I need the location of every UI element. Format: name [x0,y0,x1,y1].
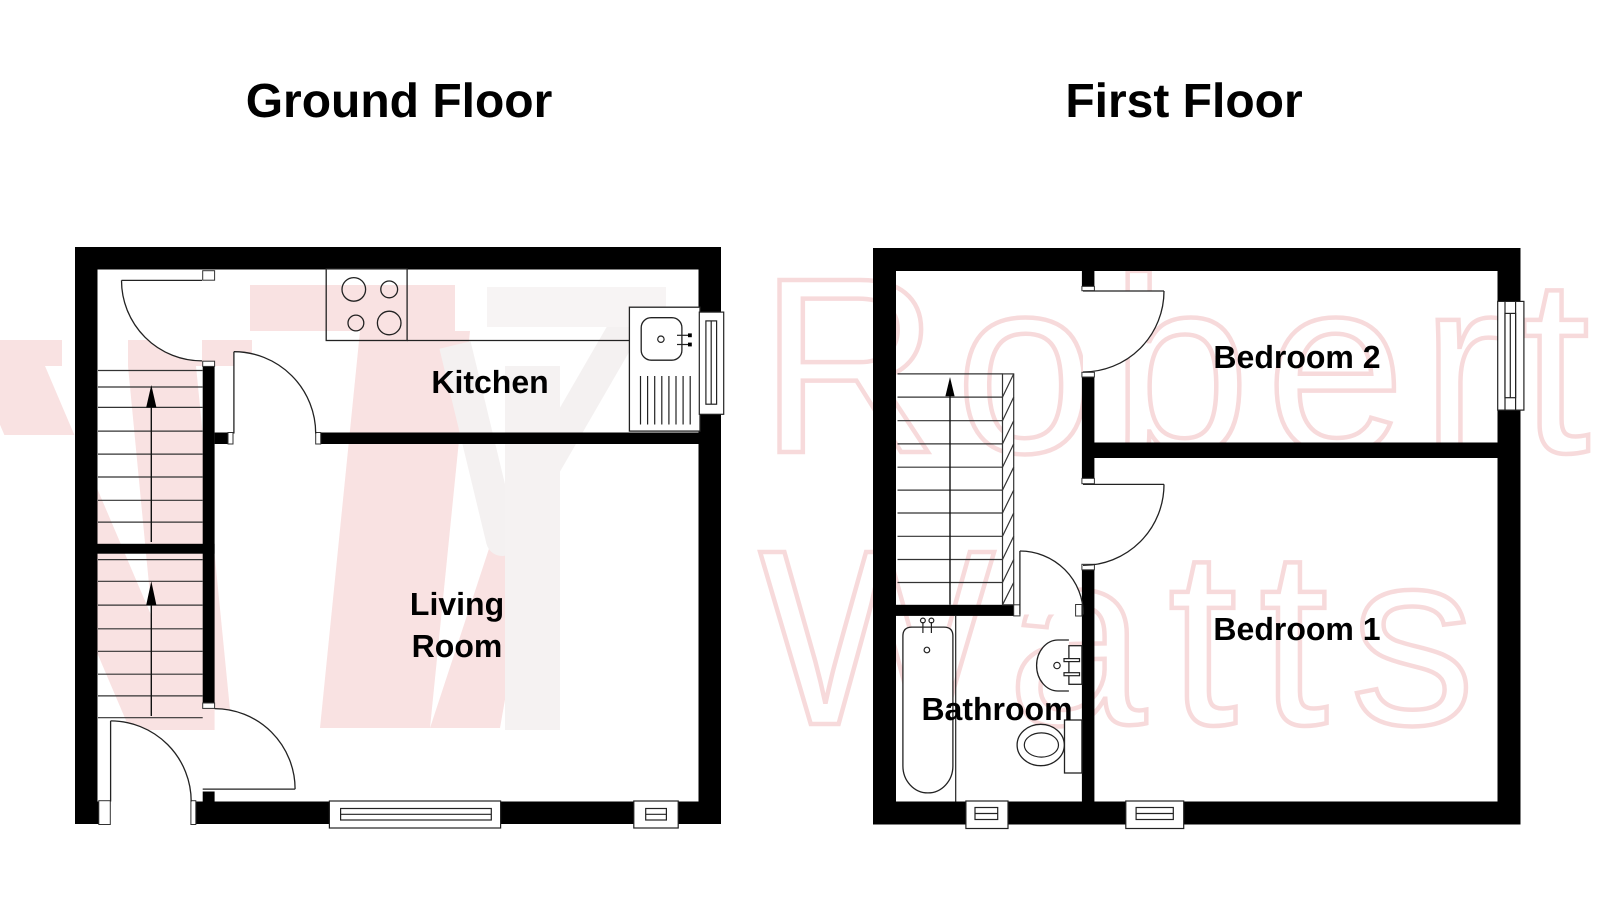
svg-text:Bathroom: Bathroom [921,691,1072,727]
svg-text:Bedroom 2: Bedroom 2 [1213,339,1380,375]
svg-text:First Floor: First Floor [1065,75,1302,128]
svg-text:Kitchen: Kitchen [431,364,548,400]
svg-text:Living: Living [410,586,504,622]
svg-text:Room: Room [412,628,503,664]
svg-text:Bedroom 1: Bedroom 1 [1213,611,1380,647]
svg-text:Ground Floor: Ground Floor [246,75,553,128]
